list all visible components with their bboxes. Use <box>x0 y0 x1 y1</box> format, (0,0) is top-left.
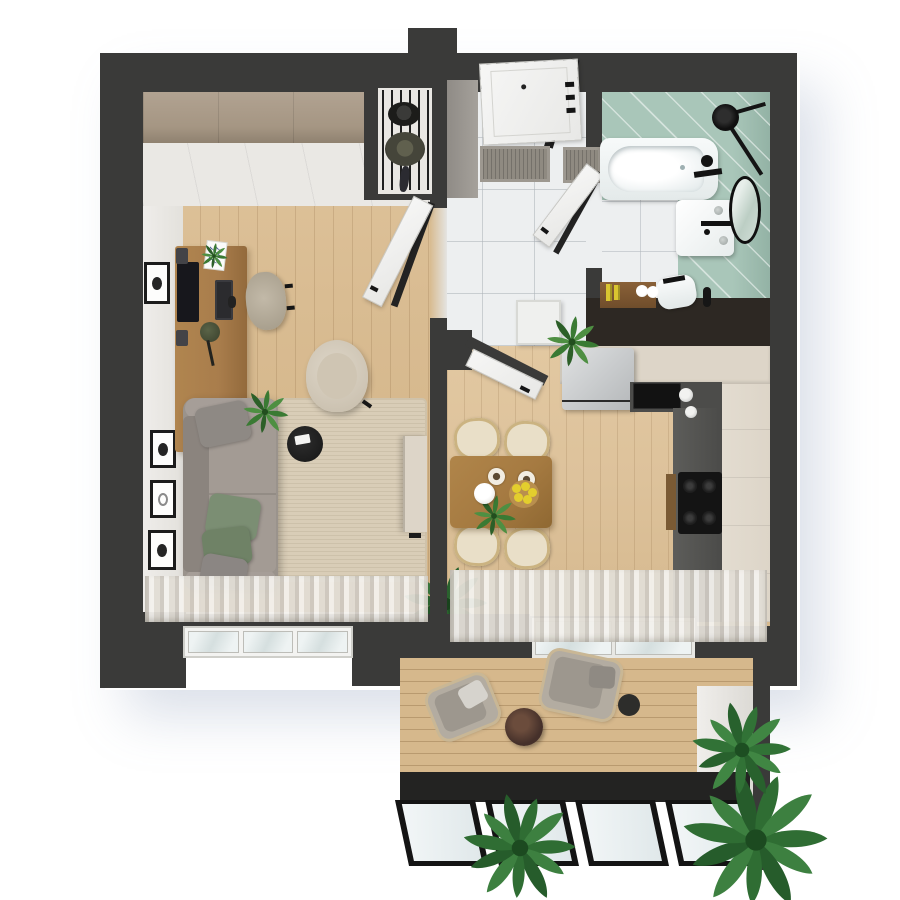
frame-art <box>158 443 168 456</box>
living-room-window <box>183 626 353 658</box>
wall-side-face <box>447 80 478 198</box>
burner <box>702 511 716 525</box>
desk-plant <box>178 220 214 256</box>
bathtub-basin <box>608 146 704 192</box>
door-handle <box>540 226 549 234</box>
wall-left <box>100 53 143 688</box>
lemon <box>514 493 523 502</box>
window-pane <box>297 631 348 653</box>
hinge <box>565 82 574 87</box>
door-handle <box>370 285 379 292</box>
wall-frame <box>148 530 176 570</box>
teapot <box>474 483 495 504</box>
window-pane <box>188 631 239 653</box>
chair-pillow <box>588 665 615 689</box>
wardrobe <box>143 90 372 143</box>
burner <box>683 511 697 525</box>
burner <box>683 479 697 493</box>
towel-roll <box>647 286 659 298</box>
palm-plant <box>402 730 520 848</box>
wall-frame <box>150 430 176 468</box>
built-in-sink <box>633 383 681 409</box>
basin-knob <box>704 229 710 235</box>
washbasin <box>676 200 734 256</box>
round-mirror <box>729 176 761 244</box>
bath-faucet <box>701 155 713 167</box>
frame-art <box>158 493 168 506</box>
armchair <box>306 340 368 412</box>
wall-right <box>770 53 797 630</box>
living-room-door-opening <box>430 208 447 318</box>
lemon-bowl <box>509 480 539 508</box>
coffee-cup <box>488 468 505 485</box>
lemon <box>523 495 532 504</box>
mug <box>685 406 697 418</box>
burner <box>702 479 716 493</box>
hinge <box>566 108 575 113</box>
lemon <box>512 484 521 493</box>
palm-plant <box>638 646 742 750</box>
wall-living-kitchen <box>430 318 447 640</box>
cosmetic-bottle <box>614 285 620 300</box>
cosmetic-bottle <box>606 284 612 301</box>
window-pane <box>243 631 294 653</box>
soap-dish <box>714 206 723 215</box>
cutting-board <box>666 474 676 530</box>
apartment-floor-plan <box>0 0 900 900</box>
mouse <box>228 296 236 308</box>
mug <box>679 388 693 402</box>
kitchen-curtains <box>450 570 767 642</box>
fridge <box>562 348 634 410</box>
frame-art <box>157 544 167 557</box>
living-room-curtains <box>145 576 428 622</box>
floor-plant <box>203 350 265 412</box>
entrance-door <box>480 60 581 145</box>
gas-hob <box>678 472 722 534</box>
peephole <box>521 84 526 89</box>
speaker <box>176 330 188 346</box>
frame-art <box>152 277 162 290</box>
wall-frame <box>144 262 170 304</box>
bathtub <box>600 138 718 200</box>
hinge <box>566 95 575 100</box>
wall-frame <box>150 480 176 518</box>
desk-lamp <box>200 322 220 342</box>
rain-shower-head <box>712 104 739 131</box>
hallway-plant <box>500 270 572 342</box>
hat <box>385 132 425 166</box>
wall-chimney <box>408 28 457 55</box>
monitor <box>177 262 199 322</box>
door-handle <box>520 385 531 393</box>
toilet-brush <box>703 287 711 307</box>
hat <box>388 102 420 126</box>
soap-dish <box>719 236 728 245</box>
doormat <box>480 146 550 182</box>
drain <box>680 165 685 170</box>
coffee-table <box>287 426 323 462</box>
